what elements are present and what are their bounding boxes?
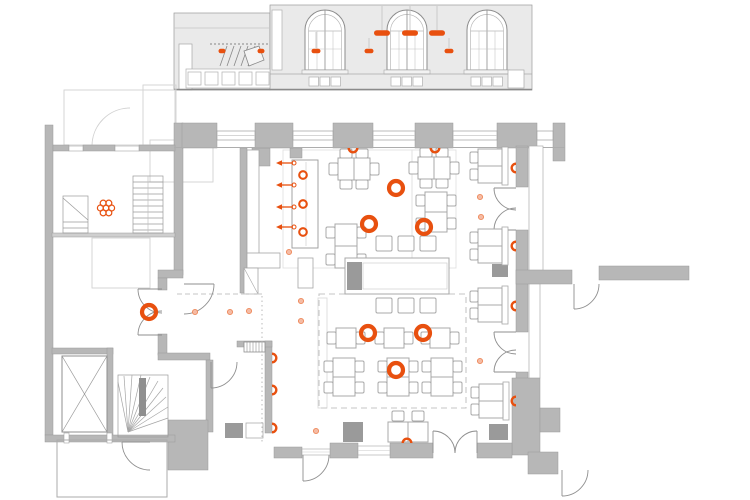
pilaster bbox=[255, 123, 293, 148]
wall-light-icon bbox=[272, 424, 276, 433]
pendant-lamp-icon bbox=[365, 49, 374, 54]
winder-stair bbox=[118, 375, 168, 437]
pilaster bbox=[415, 123, 453, 148]
recessed-spot-icon bbox=[477, 194, 482, 199]
directional-spot-icon bbox=[276, 224, 282, 230]
wall-light-icon bbox=[272, 386, 276, 395]
wall-light-icon bbox=[272, 354, 276, 363]
elevator bbox=[62, 356, 107, 432]
arched-window bbox=[302, 10, 348, 74]
section-elevation bbox=[174, 5, 532, 90]
lower-room bbox=[57, 440, 167, 497]
pilaster bbox=[497, 123, 537, 148]
wall-light-icon bbox=[512, 302, 516, 311]
wall-bench bbox=[247, 150, 259, 264]
pendant-light-icon bbox=[362, 217, 376, 231]
drawing-svg bbox=[0, 0, 750, 500]
arched-window bbox=[384, 10, 430, 74]
architectural-drawing bbox=[0, 0, 750, 500]
recessed-spot-icon bbox=[298, 318, 303, 323]
wall-lamp-icon bbox=[258, 49, 265, 54]
pendant-lamp-icon bbox=[312, 49, 321, 54]
service-station bbox=[343, 422, 363, 442]
arched-windows bbox=[302, 10, 510, 74]
pendant-lamp-icon bbox=[374, 30, 390, 36]
recessed-spot-icon bbox=[478, 214, 483, 219]
recessed-spot-icon bbox=[477, 358, 482, 363]
directional-spot-icon bbox=[276, 182, 282, 188]
wall-light-icon bbox=[512, 242, 516, 251]
recessed-spot-icon bbox=[227, 309, 232, 314]
service-station bbox=[225, 423, 243, 438]
pendant-lamp-icon bbox=[429, 30, 445, 36]
recessed-spot-icon bbox=[313, 428, 318, 433]
wall-lamp-icon bbox=[219, 49, 226, 54]
wall-light-icon bbox=[512, 164, 516, 173]
pendant-lamp-icon bbox=[402, 30, 418, 36]
directional-spot-icon bbox=[276, 160, 282, 166]
recessed-spot-icon bbox=[286, 249, 291, 254]
pendant-lamp-icon bbox=[445, 49, 454, 54]
recessed-spot-icon bbox=[246, 308, 251, 313]
pilaster bbox=[182, 123, 217, 148]
recessed-spot-icon bbox=[192, 309, 197, 314]
section-wainscot-left bbox=[186, 69, 270, 88]
service-station bbox=[492, 264, 508, 277]
directional-spot-icon bbox=[276, 204, 282, 210]
recessed-spot-icon bbox=[298, 298, 303, 303]
arched-window bbox=[464, 10, 510, 74]
pendant-light-icon bbox=[389, 181, 403, 195]
service-station bbox=[489, 424, 508, 440]
pilaster bbox=[333, 123, 373, 148]
furniture-layer bbox=[324, 147, 509, 442]
floor-plan bbox=[45, 85, 689, 497]
